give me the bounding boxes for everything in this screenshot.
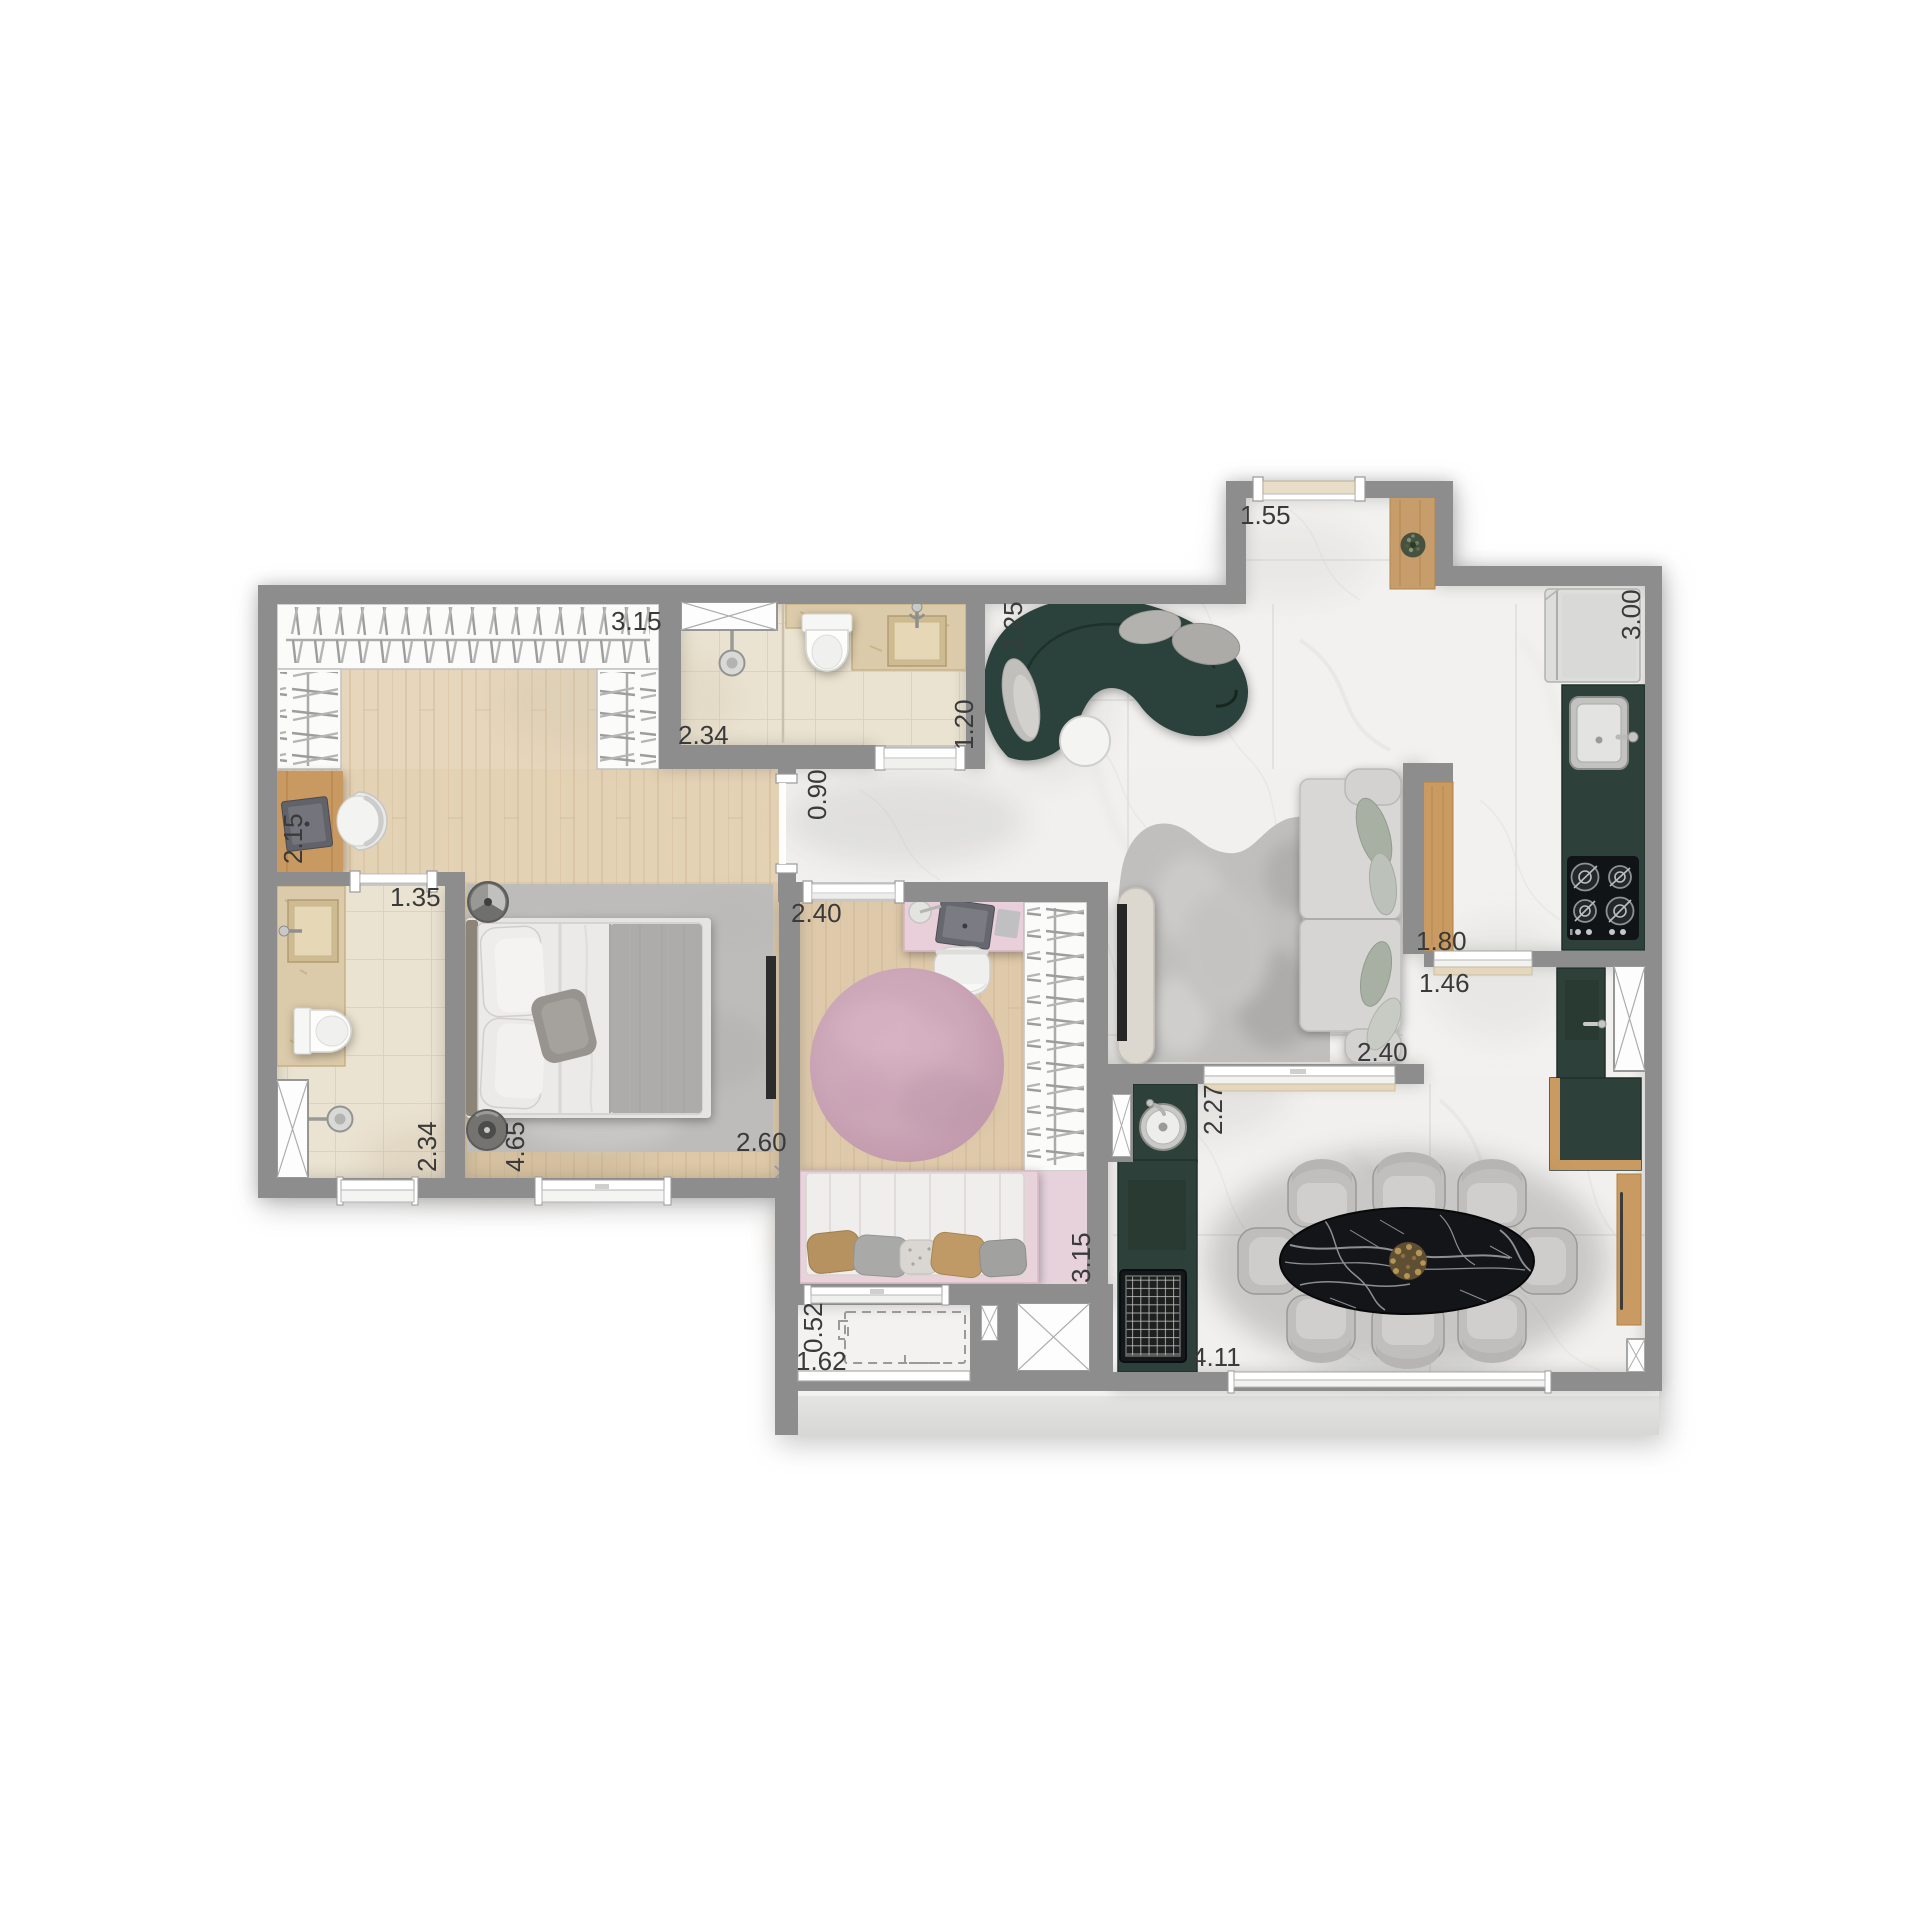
svg-text:2.60: 2.60	[736, 1127, 787, 1157]
svg-text:1.35: 1.35	[390, 882, 441, 912]
svg-text:3.15: 3.15	[1066, 1232, 1096, 1283]
svg-text:2.40: 2.40	[791, 898, 842, 928]
svg-text:2.34: 2.34	[678, 720, 729, 750]
svg-text:2.15: 2.15	[278, 813, 308, 864]
svg-text:1.80: 1.80	[1416, 926, 1467, 956]
svg-text:2.40: 2.40	[1357, 1037, 1408, 1067]
svg-text:0.90: 0.90	[802, 769, 832, 820]
svg-text:3.15: 3.15	[611, 606, 662, 636]
svg-text:4.65: 4.65	[500, 1121, 530, 1172]
svg-text:2.34: 2.34	[412, 1121, 442, 1172]
svg-text:1.46: 1.46	[1419, 968, 1470, 998]
svg-text:3.00: 3.00	[1616, 589, 1646, 640]
svg-text:1.55: 1.55	[1240, 500, 1291, 530]
svg-text:1.62: 1.62	[796, 1346, 847, 1376]
svg-text:2.25: 2.25	[998, 601, 1028, 652]
svg-text:4.11: 4.11	[1192, 1342, 1241, 1372]
svg-text:2.27: 2.27	[1198, 1084, 1228, 1135]
svg-text:1.20: 1.20	[949, 699, 979, 750]
